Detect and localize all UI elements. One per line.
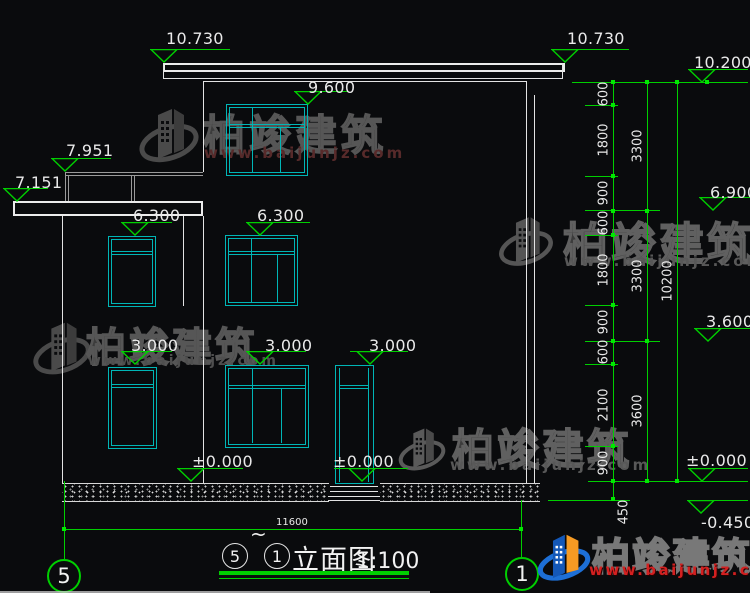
dim-label: 900 [597, 181, 612, 206]
axis-number: 5 [57, 564, 70, 588]
dim-label: 10200 [661, 260, 676, 301]
roof-edge-left [163, 63, 164, 79]
title-tilde: ~ [250, 522, 267, 546]
dim-label: 1800 [597, 253, 612, 286]
window-mullion [280, 127, 281, 172]
watermark-logo-icon [136, 101, 202, 169]
window-inner-frame [228, 238, 295, 303]
dim-tick [645, 209, 649, 213]
level-label: ±0.000 [192, 452, 253, 471]
title-underline-thick [219, 571, 409, 575]
level-label: 9.600 [308, 78, 355, 97]
level-label: 7.151 [15, 173, 62, 192]
door-step [330, 486, 378, 487]
dim-tick [705, 80, 709, 84]
dim-label: 600 [597, 82, 612, 107]
dim-line-vertical [647, 82, 648, 481]
level-label: ±0.000 [333, 452, 394, 471]
window-2f-left [108, 236, 156, 307]
wall-line [534, 95, 535, 483]
window-inner-frame [228, 368, 306, 445]
window-transom [229, 127, 304, 128]
window-mullion [277, 254, 278, 302]
window-1f-left [108, 367, 157, 449]
axis-number: 1 [515, 562, 528, 586]
dim-tick [611, 479, 615, 483]
dim-label: 1800 [597, 123, 612, 156]
roof-edge-right [562, 63, 563, 79]
door-step [330, 491, 378, 492]
dim-label: 900 [597, 451, 612, 476]
window-transom [229, 124, 304, 125]
title-axis-to: 1 [264, 543, 290, 569]
balcony-rail-post [68, 175, 69, 201]
dim-label: 2100 [597, 388, 612, 421]
dim-tick [611, 103, 615, 107]
level-label: 6.300 [257, 206, 304, 225]
dim-tick [675, 80, 679, 84]
dim-label: 600 [597, 340, 612, 365]
level-triangle-icon [150, 49, 178, 63]
door-transom [339, 388, 369, 389]
dim-tick [519, 527, 523, 531]
roof-slab [163, 63, 565, 72]
level-label: 6.900 [710, 183, 750, 202]
window-transom [111, 387, 153, 388]
window-inner-frame [111, 239, 153, 304]
dim-tick [611, 233, 615, 237]
window-transom [228, 251, 294, 252]
brand-logo-icon [536, 526, 592, 586]
window-transom [228, 388, 305, 389]
dim-line-vertical [613, 82, 614, 500]
level-triangle-icon [551, 49, 579, 63]
dim-line-vertical [677, 82, 678, 481]
dim-tick [611, 497, 615, 501]
level-triangle-icon [51, 158, 79, 172]
window-transom [111, 254, 152, 255]
level-label: 3.600 [706, 312, 750, 331]
dim-tick [611, 362, 615, 366]
door-step [328, 500, 380, 501]
balcony-rail-post [65, 172, 66, 201]
level-triangle-icon [688, 468, 716, 482]
window-mullion [251, 238, 252, 302]
dim-tick [611, 174, 615, 178]
dim-tick [62, 527, 66, 531]
dim-tick [611, 339, 615, 343]
balcony-rail-post [131, 175, 132, 201]
level-label: 10.200 [694, 53, 750, 72]
window-2f-middle [225, 235, 298, 306]
level-label: 10.730 [166, 29, 224, 48]
roof-fascia-line [163, 78, 563, 79]
window-transom [111, 384, 153, 385]
door-step [328, 496, 380, 497]
title-axis-to-number: 1 [272, 547, 282, 566]
level-label: 3.000 [369, 336, 416, 355]
window-transom [228, 385, 305, 386]
title-axis-from: 5 [222, 543, 248, 569]
level-label: 6.300 [133, 206, 180, 225]
wall-line [526, 81, 527, 483]
dim-tick [611, 209, 615, 213]
cad-elevation-drawing: 柏竣建筑 www.baijunjz.com 柏竣建筑 www.baijunjz.… [0, 0, 750, 593]
window-transom [111, 251, 152, 252]
dim-label: 600 [597, 211, 612, 236]
axis-bubble-left: 5 [47, 559, 81, 593]
dim-label: 11600 [276, 517, 308, 528]
level-triangle-icon [687, 500, 715, 514]
wall-line [183, 216, 184, 306]
brand-site: www.baijunjz.com [589, 561, 750, 579]
window-transom [228, 254, 294, 255]
axis-line [64, 481, 65, 559]
window-inner-frame [229, 107, 305, 173]
wall-top-line [203, 81, 527, 82]
dim-tick [611, 303, 615, 307]
balcony-rail-post [134, 175, 135, 201]
dim-label: 3600 [631, 394, 646, 427]
watermark-logo-icon [396, 414, 448, 484]
dim-tick [675, 479, 679, 483]
window-3f-middle [226, 104, 308, 176]
title-underline-thin [219, 578, 409, 579]
dim-tick [645, 479, 649, 483]
watermark-site: www.baijunjz.com [564, 252, 750, 270]
dim-line-horizontal [64, 529, 521, 530]
dim-label: 900 [597, 310, 612, 335]
window-inner-frame [111, 370, 154, 446]
dim-tick [645, 339, 649, 343]
window-1f-middle [225, 365, 309, 448]
window-mullion [281, 388, 282, 443]
level-label: 10.730 [567, 29, 625, 48]
dim-label: 3300 [631, 259, 646, 292]
level-label: 3.000 [131, 336, 178, 355]
wall-line [62, 216, 63, 483]
dim-tick [611, 80, 615, 84]
door-transom [339, 385, 369, 386]
window-mullion [252, 107, 253, 172]
ground-hatch [62, 483, 329, 502]
ground-hatch [380, 483, 540, 502]
watermark-site: www.baijunjz.com [450, 456, 651, 474]
title-axis-from-number: 5 [230, 547, 240, 566]
level-label: 7.951 [66, 141, 113, 160]
dim-tick [611, 444, 615, 448]
wall-line [203, 216, 204, 483]
balcony-rail-top [65, 172, 203, 173]
wall-line [203, 81, 204, 172]
level-label: ±0.000 [686, 451, 747, 470]
level-label: 3.000 [265, 336, 312, 355]
dim-tick [645, 80, 649, 84]
axis-bubble-right: 1 [505, 557, 539, 591]
window-mullion [252, 368, 253, 443]
dim-label: 3300 [631, 129, 646, 162]
dim-label: 450 [617, 500, 632, 525]
